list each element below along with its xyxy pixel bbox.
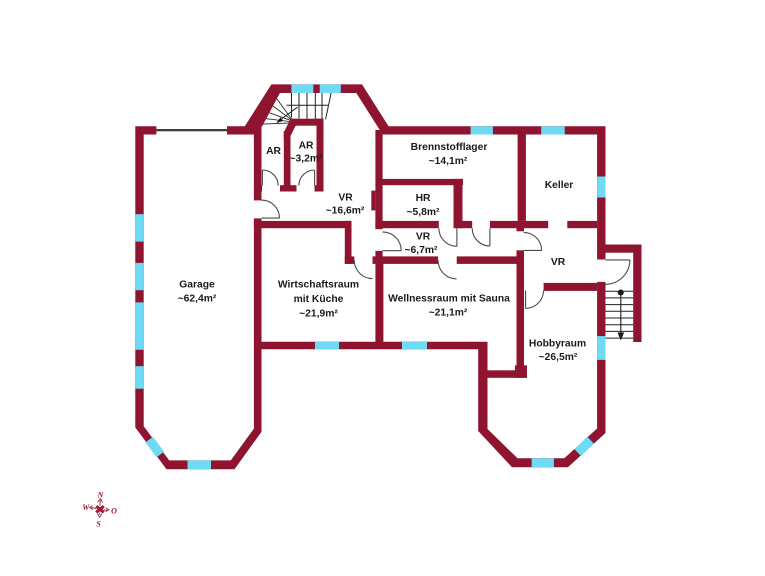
svg-text:~6,7m²: ~6,7m²: [405, 245, 438, 256]
svg-text:VR: VR: [551, 257, 566, 268]
svg-text:Garage: Garage: [179, 279, 215, 290]
svg-text:~3,2m²: ~3,2m²: [290, 153, 323, 164]
svg-text:~62,4m²: ~62,4m²: [178, 294, 217, 305]
svg-text:AR: AR: [266, 146, 281, 157]
svg-text:Brennstofflager: Brennstofflager: [411, 142, 488, 153]
svg-text:mit Küche: mit Küche: [294, 294, 344, 305]
svg-text:O: O: [111, 507, 117, 516]
svg-text:VR: VR: [338, 193, 353, 204]
svg-text:Wirtschaftsraum: Wirtschaftsraum: [278, 279, 359, 290]
svg-text:~21,1m²: ~21,1m²: [429, 307, 468, 318]
svg-text:~14,1m²: ~14,1m²: [429, 156, 468, 167]
svg-text:~21,9m²: ~21,9m²: [299, 308, 338, 319]
svg-text:~5,8m²: ~5,8m²: [407, 207, 440, 218]
svg-text:Wellnessraum mit Sauna: Wellnessraum mit Sauna: [388, 293, 510, 304]
svg-text:~26,5m²: ~26,5m²: [539, 352, 578, 363]
svg-text:W: W: [82, 503, 90, 512]
svg-text:AR: AR: [299, 141, 314, 152]
svg-text:~16,6m²: ~16,6m²: [326, 206, 365, 217]
svg-text:VR: VR: [416, 232, 431, 243]
svg-text:S: S: [96, 520, 101, 529]
svg-text:N: N: [97, 491, 105, 500]
svg-text:Keller: Keller: [545, 180, 574, 191]
svg-text:Hobbyraum: Hobbyraum: [529, 339, 586, 350]
svg-text:HR: HR: [416, 193, 431, 204]
